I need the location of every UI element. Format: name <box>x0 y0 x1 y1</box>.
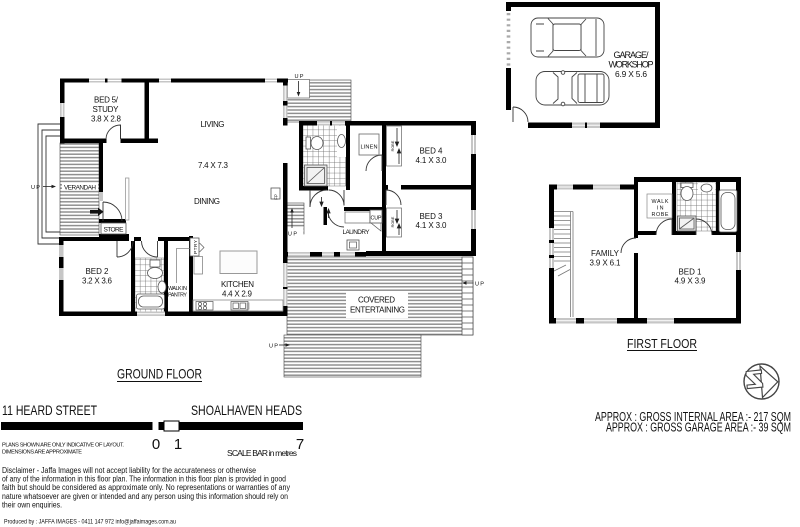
svg-text:LIVING: LIVING <box>201 120 225 129</box>
svg-text:BED 2: BED 2 <box>86 267 110 276</box>
svg-text:7.4 X 7.3: 7.4 X 7.3 <box>198 161 229 170</box>
svg-text:GROUND FLOOR: GROUND FLOOR <box>117 366 202 382</box>
svg-text:VERANDAH: VERANDAH <box>64 185 96 192</box>
svg-text:ROBE: ROBE <box>391 140 395 151</box>
svg-text:7: 7 <box>296 436 304 453</box>
svg-text:UP: UP <box>269 344 278 350</box>
svg-text:PANTRY: PANTRY <box>168 293 187 299</box>
svg-text:FP: FP <box>274 194 279 200</box>
svg-text:UP: UP <box>31 185 40 191</box>
svg-text:DIMENSIONS ARE APPROXIMATE: DIMENSIONS ARE APPROXIMATE <box>2 450 82 456</box>
svg-text:BED 4: BED 4 <box>420 147 444 156</box>
svg-text:UP: UP <box>475 282 484 288</box>
svg-text:BED 3: BED 3 <box>420 212 444 221</box>
svg-text:STORE: STORE <box>104 227 125 234</box>
svg-text:3.2 X 3.6: 3.2 X 3.6 <box>82 277 113 286</box>
svg-text:3.8 X 2.8: 3.8 X 2.8 <box>91 115 122 124</box>
svg-text:WORKSHOP: WORKSHOP <box>609 60 654 70</box>
svg-text:0: 0 <box>152 436 160 453</box>
svg-text:KITCHEN: KITCHEN <box>221 280 254 289</box>
svg-text:ROBE: ROBE <box>391 216 395 227</box>
svg-text:BED 5/: BED 5/ <box>94 96 119 105</box>
svg-text:GARAGE/: GARAGE/ <box>614 50 649 60</box>
svg-text:4.9 X 3.9: 4.9 X 3.9 <box>675 277 707 286</box>
svg-text:1: 1 <box>174 436 182 453</box>
svg-text:ROBE: ROBE <box>652 212 669 218</box>
svg-text:FAMILY: FAMILY <box>591 249 620 258</box>
svg-text:4.1 X 3.0: 4.1 X 3.0 <box>416 156 448 165</box>
svg-text:PLANS SHOWN ARE ONLY INDICATIV: PLANS SHOWN ARE ONLY INDICATIVE OF LAYOU… <box>2 443 124 449</box>
svg-text:4.4 X 2.9: 4.4 X 2.9 <box>222 290 253 299</box>
svg-text:Produced by : JAFFA IMAGES - 0: Produced by : JAFFA IMAGES - 0411 147 97… <box>4 519 176 526</box>
svg-text:UP: UP <box>288 232 297 238</box>
svg-text:UP: UP <box>295 74 304 80</box>
svg-text:SHOALHAVEN HEADS: SHOALHAVEN HEADS <box>191 402 302 418</box>
svg-text:CUP: CUP <box>371 216 382 222</box>
svg-text:APPROX : GROSS GARAGE AREA :-: APPROX : GROSS GARAGE AREA :- 39 SQM <box>606 421 791 435</box>
svg-text:BED 1: BED 1 <box>679 268 703 277</box>
svg-text:COVERED: COVERED <box>358 296 395 305</box>
svg-text:IN: IN <box>657 206 664 212</box>
svg-text:6.9 X 5.6: 6.9 X 5.6 <box>615 69 647 79</box>
svg-text:LINEN: LINEN <box>361 145 378 151</box>
svg-text:STUDY: STUDY <box>93 105 120 114</box>
svg-text:ENTERTAINING: ENTERTAINING <box>350 306 405 315</box>
svg-text:4.1 X 3.0: 4.1 X 3.0 <box>416 221 448 230</box>
svg-text:3.9 X 6.1: 3.9 X 6.1 <box>590 259 622 268</box>
svg-text:FIRST FLOOR: FIRST FLOOR <box>627 336 697 351</box>
svg-text:11 HEARD STREET: 11 HEARD STREET <box>2 402 97 418</box>
svg-text:PTRY: PTRY <box>193 239 199 254</box>
svg-text:LAUNDRY: LAUNDRY <box>343 229 371 236</box>
svg-text:their own enquiries.: their own enquiries. <box>2 500 62 509</box>
svg-text:DINING: DINING <box>194 197 220 206</box>
svg-text:WALK IN: WALK IN <box>168 286 187 292</box>
svg-text:WALK: WALK <box>652 199 669 205</box>
svg-text:SCALE BAR in metres: SCALE BAR in metres <box>227 448 297 458</box>
